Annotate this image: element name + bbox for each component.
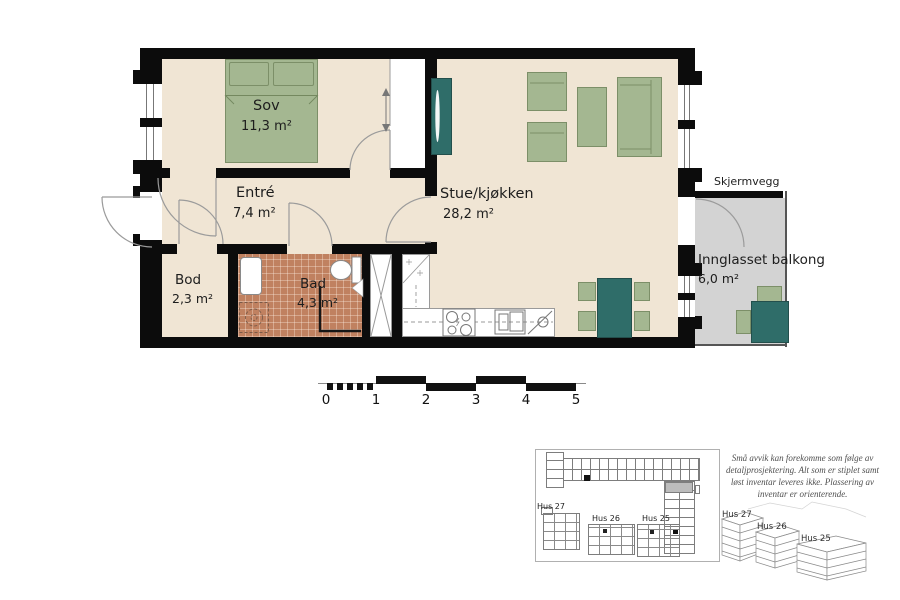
scale-bar-segment bbox=[526, 383, 576, 391]
seating-detail-lines bbox=[530, 80, 651, 154]
room-area-stue: 28,2 m² bbox=[443, 208, 494, 222]
scale-tick-4: 4 bbox=[516, 392, 536, 408]
kitchen-symbols bbox=[403, 255, 553, 322]
site-building-hus27 bbox=[543, 513, 580, 550]
building-3d-label-hus25: Hus 25 bbox=[801, 534, 831, 544]
scale-bar-dash bbox=[327, 383, 333, 390]
balcony-door bbox=[696, 199, 744, 247]
site-label-hus25: Hus 25 bbox=[642, 514, 670, 523]
closet-x-symbol bbox=[371, 255, 391, 336]
disclaimer-line: inventar er orienterende. bbox=[710, 488, 895, 500]
site-building-top-midline bbox=[563, 469, 700, 470]
room-label-stue: Stue/kjøkken bbox=[440, 187, 534, 203]
disclaimer: Små avvik kan forekomme som følge av det… bbox=[710, 452, 895, 500]
scale-tick-3: 3 bbox=[466, 392, 486, 408]
site-outline-faint bbox=[748, 502, 866, 517]
site-label-hus27: Hus 27 bbox=[537, 502, 565, 511]
wardrobe-door bbox=[350, 130, 390, 170]
site-unit-nub bbox=[695, 485, 700, 494]
disclaimer-line: løst inventar leveres ikke. Plassering a… bbox=[710, 476, 895, 488]
tv-screen bbox=[435, 90, 439, 142]
site-entry-dot bbox=[650, 530, 654, 534]
building-3d-label-hus27: Hus 27 bbox=[722, 510, 752, 520]
disclaimer-line: detaljprosjektering. Alt som er stiplet … bbox=[710, 464, 895, 476]
room-label-bad: Bad bbox=[300, 277, 326, 292]
washing-machine bbox=[240, 303, 269, 333]
disclaimer-line: Små avvik kan forekomme som følge av bbox=[710, 452, 895, 464]
room-area-balkong: 6,0 m² bbox=[698, 272, 739, 286]
site-entry-dot bbox=[603, 529, 607, 533]
door-swings bbox=[102, 130, 744, 247]
scale-bar-dash bbox=[367, 383, 373, 390]
scale-tick-1: 1 bbox=[366, 392, 386, 408]
scale-bar-dash bbox=[357, 383, 363, 390]
scale-tick-0: 0 bbox=[316, 392, 336, 408]
scale-tick-2: 2 bbox=[416, 392, 436, 408]
room-area-entre: 7,4 m² bbox=[233, 207, 276, 221]
plan-annotations-svg: N Hus 27 Hus 26 bbox=[0, 0, 900, 600]
wardrobe-strip bbox=[382, 59, 390, 132]
scale-bar-dash bbox=[347, 383, 353, 390]
site-label-hus26: Hus 26 bbox=[592, 514, 620, 523]
scale-bar-dash bbox=[337, 383, 343, 390]
room-label-bod: Bod bbox=[175, 273, 201, 288]
skjermvegg-label: Skjermvegg bbox=[714, 176, 779, 188]
site-building-hus25 bbox=[637, 524, 680, 557]
scale-bar-segment bbox=[476, 376, 526, 384]
dishwasher bbox=[528, 311, 552, 334]
scale-tick-5: 5 bbox=[566, 392, 586, 408]
kitchen-sink bbox=[495, 310, 525, 334]
stue-door bbox=[386, 197, 431, 242]
stove bbox=[443, 309, 475, 336]
scale-bar-segment bbox=[376, 376, 426, 384]
building-3d-label-hus26: Hus 26 bbox=[757, 522, 787, 532]
room-label-sov: Sov bbox=[253, 99, 280, 115]
toilet bbox=[331, 257, 362, 283]
bad-door bbox=[289, 203, 332, 246]
room-area-sov: 11,3 m² bbox=[241, 120, 292, 134]
room-label-entre: Entré bbox=[236, 186, 275, 202]
site-unit-highlight bbox=[665, 482, 693, 493]
room-label-balkong: Innglasset balkong bbox=[698, 253, 825, 268]
site-building-hus26 bbox=[588, 524, 635, 555]
entrance-door bbox=[102, 197, 152, 247]
site-building-left-wing bbox=[546, 452, 564, 488]
floor-plan-canvas: N Hus 27 Hus 26 bbox=[0, 0, 900, 600]
room-area-bad: 4,3 m² bbox=[297, 296, 338, 310]
site-entry-dot bbox=[584, 475, 590, 481]
room-area-bod: 2,3 m² bbox=[172, 292, 213, 306]
sov-door bbox=[158, 178, 216, 236]
scale-bar-segment bbox=[426, 383, 476, 391]
